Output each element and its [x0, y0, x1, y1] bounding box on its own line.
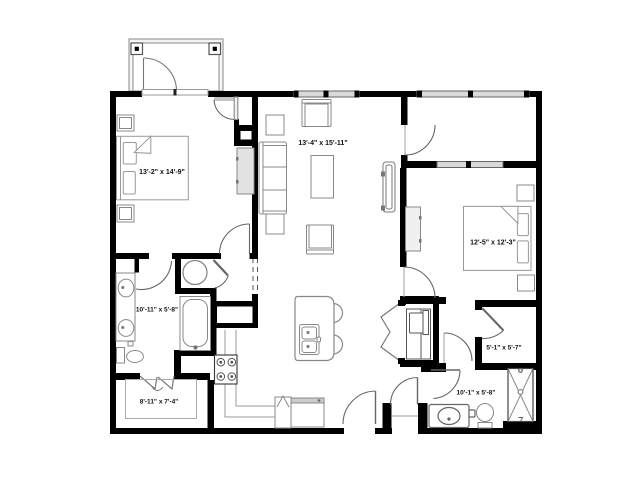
svg-text:10'-1" x 5'-8": 10'-1" x 5'-8" — [457, 390, 496, 397]
svg-text:5'-1" x 5'-7": 5'-1" x 5'-7" — [486, 345, 521, 352]
svg-text:13'-2" x 14'-9": 13'-2" x 14'-9" — [139, 169, 185, 176]
svg-text:10'-11" x 5'-8": 10'-11" x 5'-8" — [136, 307, 178, 314]
svg-text:8'-11" x 7'-4": 8'-11" x 7'-4" — [140, 399, 179, 406]
svg-text:12'-5" x 12'-3": 12'-5" x 12'-3" — [470, 240, 516, 247]
svg-text:13'-4" x 15'-11": 13'-4" x 15'-11" — [298, 140, 347, 147]
